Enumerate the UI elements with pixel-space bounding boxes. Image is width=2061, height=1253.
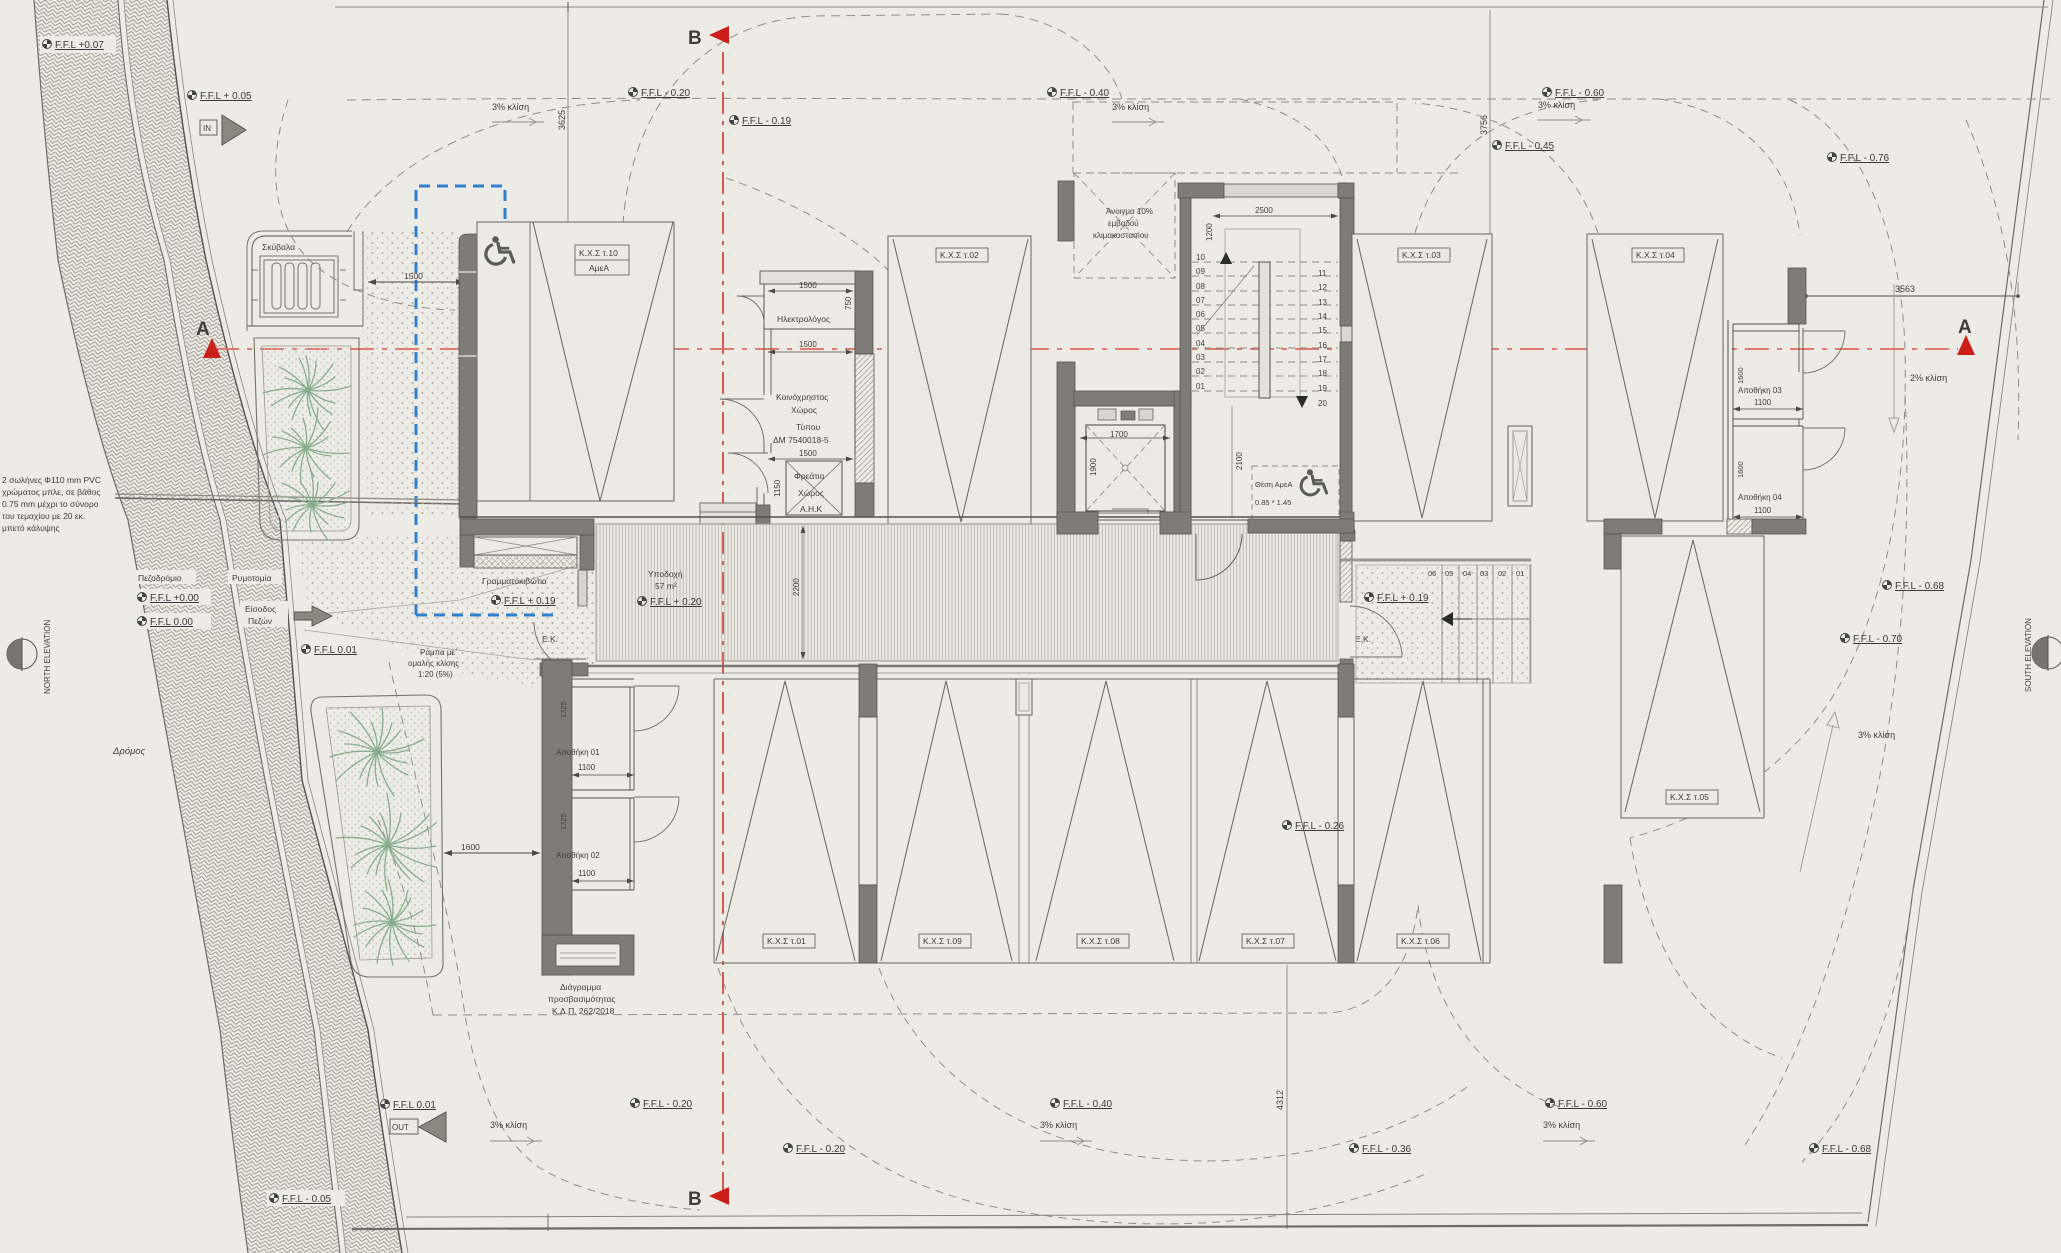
svg-text:Κ.Δ.Π. 262/2018: Κ.Δ.Π. 262/2018 xyxy=(552,1006,615,1016)
svg-text:F.F.L - 0.70: F.F.L - 0.70 xyxy=(1853,634,1903,645)
svg-text:57 m²: 57 m² xyxy=(655,581,677,591)
svg-text:11: 11 xyxy=(1318,269,1327,278)
svg-text:Α.Η.Κ: Α.Η.Κ xyxy=(800,504,823,514)
svg-text:4312: 4312 xyxy=(1275,1090,1285,1110)
svg-text:Κ.Χ.Σ τ.04: Κ.Χ.Σ τ.04 xyxy=(1636,250,1675,260)
svg-text:0.85 * 1.45: 0.85 * 1.45 xyxy=(1255,498,1291,507)
svg-text:Κ.Χ.Σ τ.03: Κ.Χ.Σ τ.03 xyxy=(1402,250,1441,260)
svg-text:B: B xyxy=(688,1189,702,1210)
svg-text:Κ.Χ.Σ τ.09: Κ.Χ.Σ τ.09 xyxy=(923,936,962,946)
svg-text:προσβασιμότητας: προσβασιμότητας xyxy=(548,994,615,1004)
svg-text:Φρεάτιο: Φρεάτιο xyxy=(794,471,825,481)
svg-text:1100: 1100 xyxy=(1754,506,1772,515)
svg-text:Αποθήκη 01: Αποθήκη 01 xyxy=(556,748,600,757)
svg-text:F.F.L - 0.60: F.F.L - 0.60 xyxy=(1558,1099,1608,1110)
svg-text:F.F.L - 0.68: F.F.L - 0.68 xyxy=(1822,1144,1872,1155)
svg-text:17: 17 xyxy=(1318,355,1327,364)
svg-text:F.F.L - 0.20: F.F.L - 0.20 xyxy=(796,1144,846,1155)
svg-text:10: 10 xyxy=(1196,253,1205,262)
svg-text:03: 03 xyxy=(1480,569,1488,578)
svg-text:1100: 1100 xyxy=(578,869,596,878)
svg-text:3% κλίση: 3% κλίση xyxy=(490,1120,527,1130)
svg-text:NORTH ELEVATION: NORTH ELEVATION xyxy=(43,620,52,694)
svg-text:Υποδοχή: Υποδοχή xyxy=(648,569,683,579)
svg-text:Χώρος: Χώρος xyxy=(791,405,817,415)
svg-text:19: 19 xyxy=(1318,384,1327,393)
svg-text:F.F.L + 0.19: F.F.L + 0.19 xyxy=(504,596,556,607)
svg-text:F.F.L - 0.19: F.F.L - 0.19 xyxy=(742,116,792,127)
svg-text:14: 14 xyxy=(1318,312,1327,321)
svg-text:του τεμαχίου με 20 εκ.: του τεμαχίου με 20 εκ. xyxy=(2,511,85,521)
svg-text:15: 15 xyxy=(1318,326,1327,335)
svg-text:Κ.Χ.Σ τ.02: Κ.Χ.Σ τ.02 xyxy=(940,250,979,260)
svg-text:08: 08 xyxy=(1196,282,1205,291)
svg-text:1900: 1900 xyxy=(1089,458,1098,476)
svg-text:16: 16 xyxy=(1318,341,1327,350)
svg-text:1500: 1500 xyxy=(799,281,817,290)
svg-text:Κ.Χ.Σ τ.08: Κ.Χ.Σ τ.08 xyxy=(1081,936,1120,946)
svg-text:Κ.Χ.Σ τ.10: Κ.Χ.Σ τ.10 xyxy=(579,248,618,258)
svg-text:3% κλίση: 3% κλίση xyxy=(1112,102,1149,112)
svg-text:F.F.L - 0.36: F.F.L - 0.36 xyxy=(1362,1144,1412,1155)
svg-text:F.F.L - 0.68: F.F.L - 0.68 xyxy=(1895,581,1945,592)
svg-text:18: 18 xyxy=(1318,369,1327,378)
svg-text:1725: 1725 xyxy=(559,813,568,830)
svg-text:Δρόμος: Δρόμος xyxy=(112,746,146,757)
svg-text:3% κλίση: 3% κλίση xyxy=(1858,730,1895,740)
svg-text:1725: 1725 xyxy=(559,701,568,718)
svg-text:F.F.L - 0.20: F.F.L - 0.20 xyxy=(643,1099,693,1110)
svg-text:Σκύβαλα: Σκύβαλα xyxy=(262,242,295,252)
svg-text:F.F.L - 0.05: F.F.L - 0.05 xyxy=(282,1194,332,1205)
svg-text:01: 01 xyxy=(1516,569,1524,578)
svg-text:Ρυμοτομία: Ρυμοτομία xyxy=(232,573,272,583)
svg-text:05: 05 xyxy=(1196,324,1205,333)
svg-text:Ράμπα με΄: Ράμπα με΄ xyxy=(420,648,458,657)
svg-text:F.F.L - 0.60: F.F.L - 0.60 xyxy=(1555,88,1605,99)
svg-text:02: 02 xyxy=(1498,569,1506,578)
svg-text:OUT: OUT xyxy=(392,1123,409,1132)
svg-text:F.F.L + 0.05: F.F.L + 0.05 xyxy=(200,91,252,102)
svg-text:3% κλίση: 3% κλίση xyxy=(1538,100,1575,110)
svg-text:Κ.Χ.Σ τ.07: Κ.Χ.Σ τ.07 xyxy=(1246,936,1285,946)
svg-text:0.75 mm μέχρι το σύνορο: 0.75 mm μέχρι το σύνορο xyxy=(2,499,99,509)
svg-text:εμβαδού: εμβαδού xyxy=(1108,219,1139,228)
svg-text:Αποθήκη 02: Αποθήκη 02 xyxy=(556,851,600,860)
svg-text:Διάγραμμα: Διάγραμμα xyxy=(560,982,601,992)
svg-text:12: 12 xyxy=(1318,283,1327,292)
svg-text:Είσοδος: Είσοδος xyxy=(245,604,276,614)
svg-text:02: 02 xyxy=(1196,367,1205,376)
svg-text:Ηλεκτρολόγος: Ηλεκτρολόγος xyxy=(777,314,830,324)
svg-text:05: 05 xyxy=(1445,569,1453,578)
svg-text:1100: 1100 xyxy=(1754,398,1772,407)
svg-text:SOUTH ELEVATION: SOUTH ELEVATION xyxy=(2024,618,2033,692)
svg-text:F.F.L - 0.76: F.F.L - 0.76 xyxy=(1840,153,1890,164)
svg-text:κλιμακοστασίου: κλιμακοστασίου xyxy=(1093,231,1149,240)
svg-text:2% κλίση: 2% κλίση xyxy=(1910,373,1947,383)
svg-text:1100: 1100 xyxy=(578,763,596,772)
svg-text:Κ.Χ.Σ τ.05: Κ.Χ.Σ τ.05 xyxy=(1670,792,1709,802)
svg-text:06: 06 xyxy=(1428,569,1436,578)
svg-text:F.F.L 0.00: F.F.L 0.00 xyxy=(150,617,193,628)
svg-text:Χώρος: Χώρος xyxy=(798,488,824,498)
svg-text:1500: 1500 xyxy=(404,271,423,281)
svg-text:3563: 3563 xyxy=(1895,284,1915,294)
svg-text:1600: 1600 xyxy=(461,842,480,852)
svg-text:04: 04 xyxy=(1463,569,1471,578)
svg-text:2500: 2500 xyxy=(1255,206,1273,215)
svg-text:1:20 (5%): 1:20 (5%) xyxy=(418,670,453,679)
svg-text:2100: 2100 xyxy=(1235,452,1244,470)
svg-text:03: 03 xyxy=(1196,353,1205,362)
svg-text:μπετό κάλυψης: μπετό κάλυψης xyxy=(2,523,60,533)
svg-text:Τύπου: Τύπου xyxy=(796,422,821,432)
svg-text:1500: 1500 xyxy=(799,340,817,349)
svg-text:3% κλίση: 3% κλίση xyxy=(492,102,529,112)
svg-text:F.F.L - 0.40: F.F.L - 0.40 xyxy=(1063,1099,1113,1110)
svg-text:1150: 1150 xyxy=(773,479,782,497)
svg-text:Κ.Χ.Σ τ.06: Κ.Χ.Σ τ.06 xyxy=(1401,936,1440,946)
svg-text:F.F.L +0.07: F.F.L +0.07 xyxy=(55,40,104,51)
svg-text:2200: 2200 xyxy=(792,578,801,596)
svg-text:F.F.L - 0.45: F.F.L - 0.45 xyxy=(1505,141,1555,152)
svg-text:Κοινόχρηστος: Κοινόχρηστος xyxy=(776,392,828,402)
svg-text:ΑμεΑ: ΑμεΑ xyxy=(589,263,609,273)
svg-text:Πεζών: Πεζών xyxy=(248,616,272,626)
svg-text:1600: 1600 xyxy=(1736,461,1745,478)
svg-text:IN: IN xyxy=(203,124,211,133)
svg-text:B: B xyxy=(688,28,702,49)
svg-text:F.F.L - 0.40: F.F.L - 0.40 xyxy=(1060,88,1110,99)
svg-text:Αποθήκη 03: Αποθήκη 03 xyxy=(1738,386,1782,395)
svg-text:06: 06 xyxy=(1196,310,1205,319)
svg-text:Άνοιγμα 10%: Άνοιγμα 10% xyxy=(1106,207,1153,216)
svg-text:ΔΜ 7540018-5: ΔΜ 7540018-5 xyxy=(773,435,829,445)
svg-text:F.F.L + 0.20: F.F.L + 0.20 xyxy=(650,597,702,608)
svg-text:750: 750 xyxy=(844,296,853,310)
svg-text:13: 13 xyxy=(1318,298,1327,307)
svg-text:01: 01 xyxy=(1196,382,1205,391)
svg-text:20: 20 xyxy=(1318,399,1327,408)
svg-text:χρώματος μπλε, σε βάθος: χρώματος μπλε, σε βάθος xyxy=(2,487,100,497)
svg-text:F.F.L 0.01: F.F.L 0.01 xyxy=(314,645,357,656)
svg-text:F.F.L + 0.19: F.F.L + 0.19 xyxy=(1377,593,1429,604)
svg-text:09: 09 xyxy=(1196,267,1205,276)
svg-text:Γραμματοκιβώτια: Γραμματοκιβώτια xyxy=(482,576,547,586)
svg-text:1600: 1600 xyxy=(1736,367,1745,384)
svg-text:07: 07 xyxy=(1196,296,1205,305)
svg-text:ομαλής κλίσης: ομαλής κλίσης xyxy=(408,659,459,668)
svg-text:A: A xyxy=(1958,317,1972,338)
svg-text:A: A xyxy=(196,319,210,340)
svg-text:Ε.Κ.: Ε.Κ. xyxy=(542,634,558,644)
svg-text:1500: 1500 xyxy=(799,449,817,458)
svg-text:Κ.Χ.Σ τ.01: Κ.Χ.Σ τ.01 xyxy=(767,936,806,946)
svg-text:F.F.L 0.01: F.F.L 0.01 xyxy=(393,1100,436,1111)
svg-text:F.F.L +0.00: F.F.L +0.00 xyxy=(150,593,199,604)
svg-text:3% κλίση: 3% κλίση xyxy=(1543,1120,1580,1130)
svg-text:F.F.L - 0.26: F.F.L - 0.26 xyxy=(1295,821,1345,832)
svg-text:Αποθήκη 04: Αποθήκη 04 xyxy=(1738,493,1782,502)
svg-text:2 σωλήνες Φ110 mm PVC: 2 σωλήνες Φ110 mm PVC xyxy=(2,475,101,485)
svg-text:Πεζοδρόμιο: Πεζοδρόμιο xyxy=(138,573,182,583)
svg-text:F.F.L - 0.20: F.F.L - 0.20 xyxy=(641,88,691,99)
svg-text:Θέση ΑμεΑ: Θέση ΑμεΑ xyxy=(1255,480,1292,489)
svg-text:04: 04 xyxy=(1196,339,1205,348)
svg-text:3625: 3625 xyxy=(557,110,567,130)
svg-text:3% κλίση: 3% κλίση xyxy=(1040,1120,1077,1130)
svg-text:1200: 1200 xyxy=(1205,223,1214,241)
